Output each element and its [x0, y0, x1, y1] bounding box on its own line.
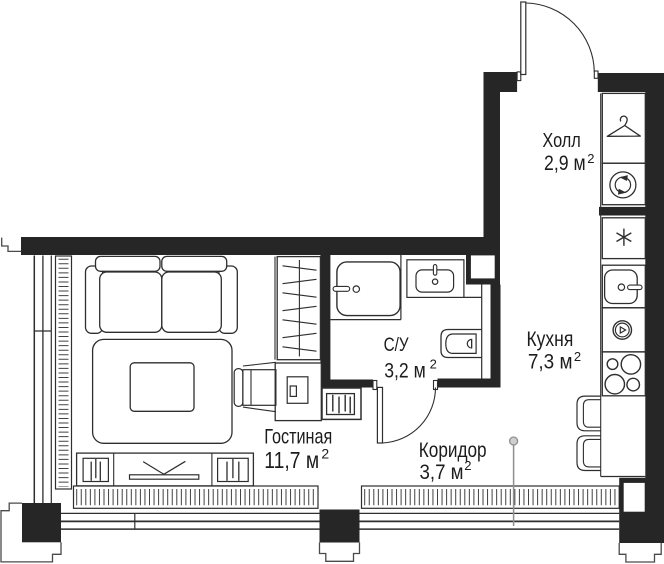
svg-text:Холл: Холл [542, 130, 580, 152]
svg-text:2: 2 [430, 357, 437, 372]
svg-text:2: 2 [321, 445, 329, 461]
svg-text:Коридор: Коридор [419, 439, 487, 462]
svg-text:2: 2 [587, 151, 594, 166]
svg-text:7,3 м: 7,3 м [528, 350, 573, 373]
svg-text:С/У: С/У [384, 334, 409, 356]
svg-text:3,7 м: 3,7 м [420, 461, 464, 484]
svg-text:11,7 м: 11,7 м [264, 447, 319, 473]
svg-text:Кухня: Кухня [527, 327, 574, 351]
svg-text:2: 2 [464, 458, 471, 473]
svg-text:2: 2 [574, 349, 581, 364]
svg-text:3,2 м: 3,2 м [384, 359, 426, 382]
svg-text:2,9 м: 2,9 м [544, 152, 586, 175]
